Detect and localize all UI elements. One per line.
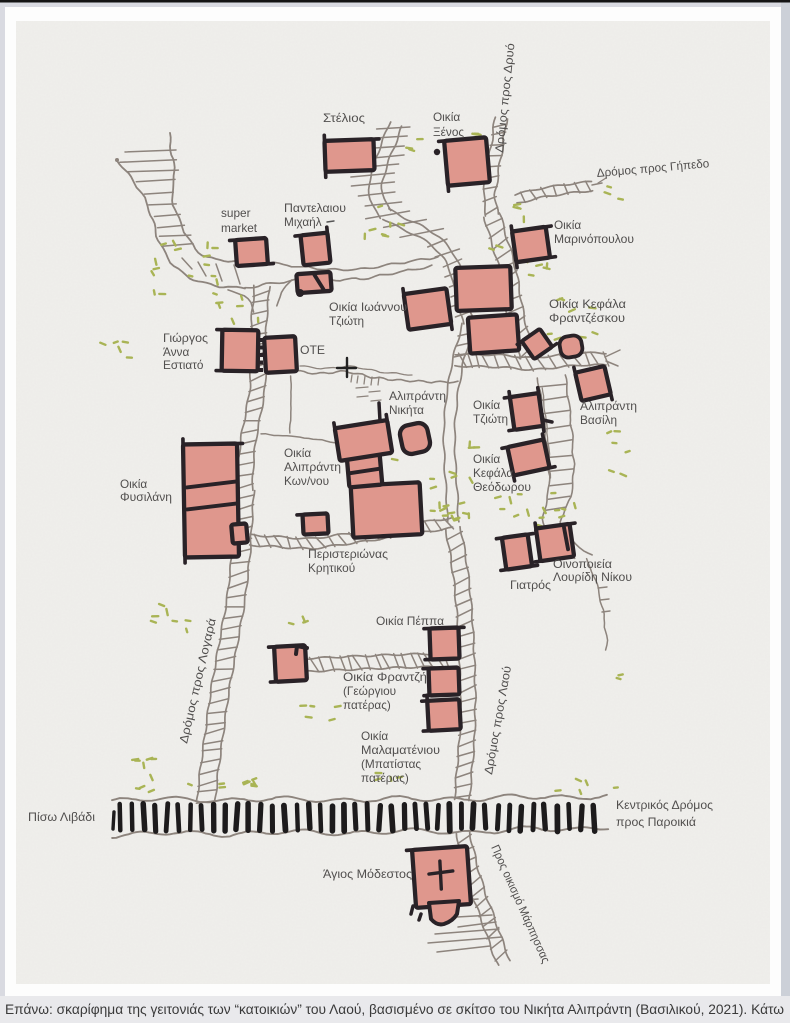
svg-text:πατέρας): πατέρας) [343,698,391,712]
svg-text:Παντελαιου: Παντελαιου [284,201,346,215]
svg-text:Ξένος: Ξένος [433,125,464,139]
svg-text:Οικία Πέππα: Οικία Πέππα [376,614,444,628]
svg-text:Επάνω: σκαρίφημα της γειτονιάς: Επάνω: σκαρίφημα της γειτονιάς των “κατο… [5,1002,784,1018]
svg-text:Κων/νου: Κων/νου [284,474,329,488]
svg-text:Άγιος Μόδεστος: Άγιος Μόδεστος [323,867,412,881]
svg-text:Οικία Φραντζή: Οικία Φραντζή [343,670,427,684]
svg-text:Κρητικού: Κρητικού [308,561,355,575]
svg-text:Γιώργος: Γιώργος [163,331,208,345]
svg-text:Μαρινόπουλου: Μαρινόπουλου [554,232,634,246]
svg-text:προς Παροικιά: προς Παροικιά [616,815,696,829]
svg-text:Οινοποιεία: Οινοποιεία [553,557,612,571]
svg-text:Στέλιος: Στέλιος [323,111,365,125]
svg-text:Οικία: Οικία [554,218,581,232]
svg-text:Μαλαματένιου: Μαλαματένιου [361,743,440,757]
svg-text:Οικία: Οικία [284,446,311,460]
svg-text:Φραντζέσκου: Φραντζέσκου [549,311,625,325]
svg-text:(Γεώργιου: (Γεώργιου [343,684,396,698]
svg-text:Οικία: Οικία [361,729,388,743]
svg-text:super: super [221,206,251,220]
svg-text:Αλιπράντη: Αλιπράντη [284,460,341,474]
svg-text:Αλιπράντη: Αλιπράντη [389,389,446,403]
svg-text:Βασίλη: Βασίλη [580,413,617,427]
svg-text:Πίσω Λιβάδι: Πίσω Λιβάδι [28,810,95,824]
svg-text:Οικία: Οικία [433,110,460,124]
svg-text:(Μπατίστας: (Μπατίστας [361,757,421,771]
svg-text:πατέρας): πατέρας) [361,771,409,785]
svg-text:Τζιώτη: Τζιώτη [329,314,364,328]
svg-text:Περιστεριώνας: Περιστεριώνας [308,547,388,561]
svg-text:Οικία: Οικία [473,452,500,466]
svg-text:Οικία: Οικία [473,398,500,412]
svg-text:Οικία Κεφάλα: Οικία Κεφάλα [549,297,626,311]
svg-text:Θεόδωρου: Θεόδωρου [473,480,531,494]
svg-text:Τζιώτη: Τζιώτη [473,412,508,426]
svg-text:market: market [221,221,258,235]
svg-text:Οικία: Οικία [120,477,147,491]
svg-text:Άννα: Άννα [163,345,189,359]
svg-text:Φυσιλάνη: Φυσιλάνη [120,490,172,504]
svg-text:Κεντρικός Δρόμος: Κεντρικός Δρόμος [616,798,713,812]
svg-text:Κεφάλα: Κεφάλα [473,466,513,480]
svg-text:Μιχαήλ: Μιχαήλ [284,215,322,229]
svg-text:Εστιατό: Εστιατό [163,358,204,372]
svg-text:OTE: OTE [300,343,325,357]
svg-text:Γιατρός: Γιατρός [510,578,551,592]
svg-text:Αλιπράντη: Αλιπράντη [580,399,637,413]
svg-text:Νικήτα: Νικήτα [389,403,424,417]
svg-text:Λουρίδη Νίκου: Λουρίδη Νίκου [553,570,632,584]
svg-text:Οικία Ιωάννου: Οικία Ιωάννου [329,300,407,314]
